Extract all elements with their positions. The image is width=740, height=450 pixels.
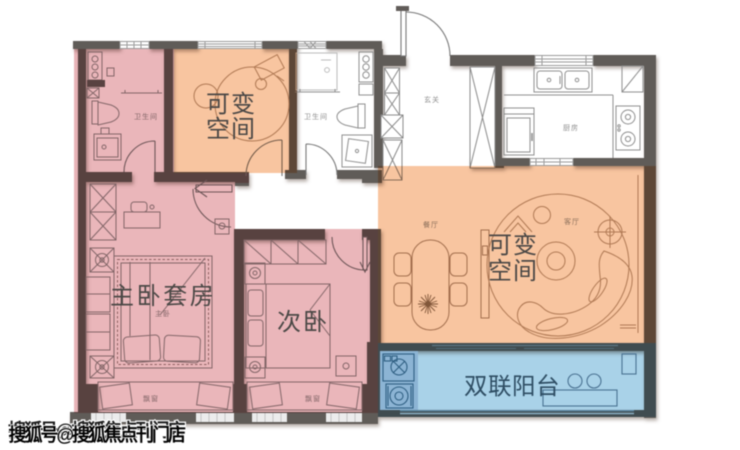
svg-text:双联阳台: 双联阳台	[464, 373, 560, 399]
svg-text:主卧套房: 主卧套房	[110, 283, 216, 310]
svg-text:次卧: 次卧	[277, 309, 329, 336]
svg-text:可变: 可变	[206, 91, 256, 118]
svg-text:空间: 空间	[206, 116, 256, 143]
svg-text:搜狐号@搜狐焦点刊门店: 搜狐号@搜狐焦点刊门店	[9, 424, 187, 445]
svg-text:空间: 空间	[488, 258, 538, 285]
svg-text:可变: 可变	[488, 232, 538, 259]
svg-text:厨房: 厨房	[563, 123, 579, 132]
svg-text:卫生间: 卫生间	[304, 112, 328, 121]
svg-text:玄关: 玄关	[424, 95, 440, 104]
